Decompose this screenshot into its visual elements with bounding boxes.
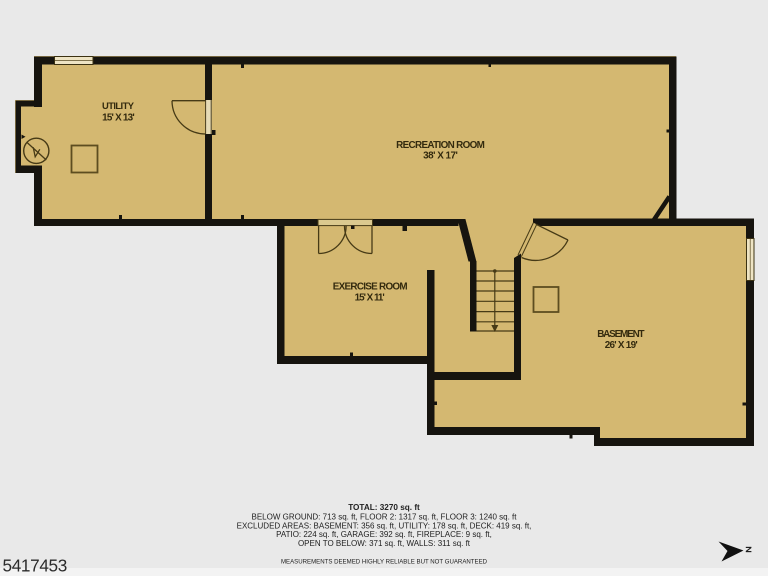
svg-text:15' X 11': 15' X 11' xyxy=(355,292,385,303)
svg-text:5417453: 5417453 xyxy=(3,556,67,576)
svg-text:15' X 13': 15' X 13' xyxy=(102,112,135,123)
svg-text:EXERCISE ROOM: EXERCISE ROOM xyxy=(333,282,408,293)
svg-text:PATIO: 224 sq. ft, GARAGE: 392: PATIO: 224 sq. ft, GARAGE: 392 sq. ft, F… xyxy=(276,530,492,539)
svg-text:OPEN TO BELOW: 371 sq. ft, WAL: OPEN TO BELOW: 371 sq. ft, WALLS: 311 sq… xyxy=(298,539,471,548)
svg-text:BELOW GROUND: 713 sq. ft, FLOO: BELOW GROUND: 713 sq. ft, FLOOR 2: 1317 … xyxy=(252,513,518,522)
svg-text:26' X 19': 26' X 19' xyxy=(605,340,638,351)
svg-text:MEASUREMENTS DEEMED HIGHLY REL: MEASUREMENTS DEEMED HIGHLY RELIABLE BUT … xyxy=(281,559,488,566)
svg-text:UTILITY: UTILITY xyxy=(102,100,135,111)
svg-text:EXCLUDED AREAS: BASEMENT: 356: EXCLUDED AREAS: BASEMENT: 356 sq. ft, UT… xyxy=(237,521,532,530)
svg-text:TOTAL: 3270 sq. ft: TOTAL: 3270 sq. ft xyxy=(348,503,420,512)
svg-text:BASEMENT: BASEMENT xyxy=(597,329,644,340)
svg-text:38' X 17': 38' X 17' xyxy=(423,150,458,161)
